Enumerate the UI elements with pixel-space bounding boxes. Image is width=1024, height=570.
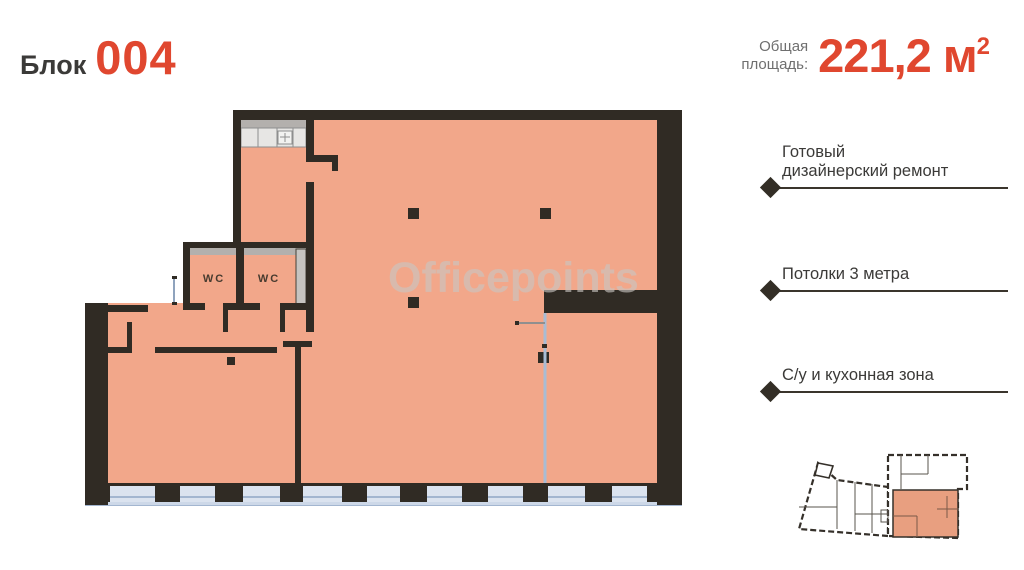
block-title: Блок 004 [20, 34, 177, 81]
feature-line: дизайнерский ремонт [782, 162, 1012, 181]
feature-line: Потолки 3 метра [782, 265, 1012, 284]
block-number: 004 [95, 34, 176, 81]
area-unit: м [943, 29, 977, 82]
page: { "header": { "block_label": "Блок", "bl… [0, 0, 1024, 570]
feature-line: С/у и кухонная зона [782, 366, 1012, 385]
wc-label-1: WC [203, 273, 225, 285]
floorplan-canvas: WC WC [0, 0, 1024, 570]
area-number: 221,2 [818, 29, 931, 82]
minimap-peak-notch [815, 463, 833, 478]
wc-label-2: WC [258, 273, 280, 285]
minimap-highlight-block [893, 490, 958, 537]
area-value: 221,2 м2 [818, 32, 990, 79]
window-sill [85, 502, 682, 505]
counter-top [241, 128, 306, 147]
block-label: Блок [20, 50, 86, 81]
kitchen-counter [241, 118, 306, 147]
feature-line: Готовый [782, 143, 1012, 162]
feature-text: Готовый дизайнерский ремонт [782, 143, 1012, 181]
feature-rule [771, 391, 1008, 393]
feature-rule [771, 290, 1008, 292]
entrance-door [172, 276, 177, 305]
area-label: Общая площадь: [741, 38, 808, 73]
total-area: Общая площадь: 221,2 м2 [741, 32, 990, 79]
area-label-line2: площадь: [741, 56, 808, 73]
feature-text: Потолки 3 метра [782, 265, 1012, 284]
wc-shaft [296, 249, 306, 307]
area-label-line1: Общая [741, 38, 808, 55]
area-sup: 2 [977, 33, 990, 60]
feature-text: С/у и кухонная зона [782, 366, 1012, 385]
minimap [799, 455, 967, 538]
wc-duct-band [190, 248, 306, 255]
feature-rule [771, 187, 1008, 189]
minimap-left-wing [799, 463, 888, 536]
facade-windows [85, 483, 682, 506]
